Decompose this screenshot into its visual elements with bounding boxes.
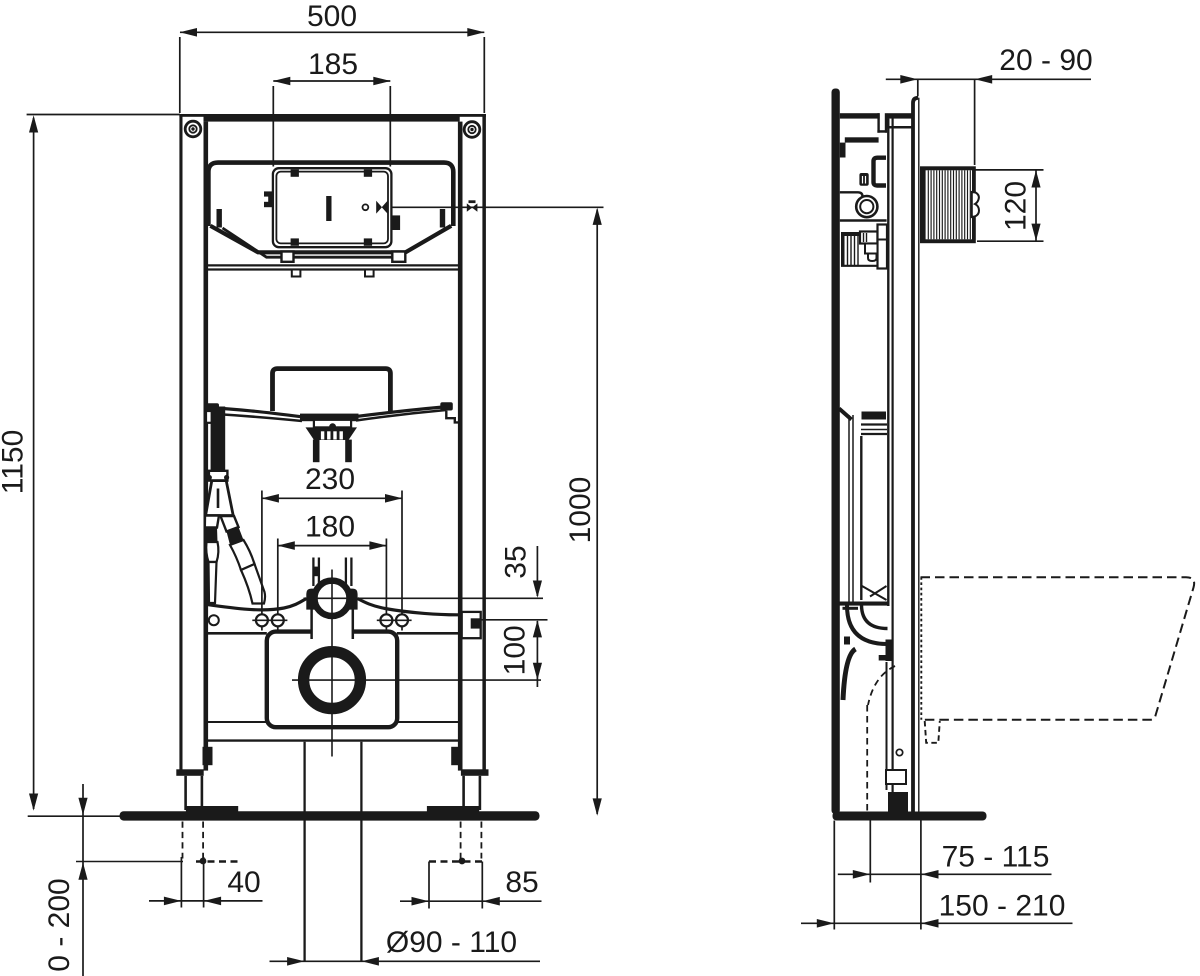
svg-text:20 - 90: 20 - 90 xyxy=(999,44,1092,77)
svg-text:120: 120 xyxy=(1000,181,1033,231)
svg-text:180: 180 xyxy=(305,511,355,544)
svg-text:35: 35 xyxy=(500,545,533,578)
svg-text:Ø90 - 110: Ø90 - 110 xyxy=(386,926,517,959)
svg-text:40: 40 xyxy=(227,866,260,899)
svg-text:75 - 115: 75 - 115 xyxy=(942,841,1050,874)
svg-text:1150: 1150 xyxy=(0,430,30,495)
svg-text:150 - 210: 150 - 210 xyxy=(939,890,1066,923)
svg-text:230: 230 xyxy=(305,463,355,496)
svg-text:85: 85 xyxy=(505,866,538,899)
svg-text:185: 185 xyxy=(308,48,358,81)
svg-text:100: 100 xyxy=(499,625,532,675)
svg-text:0 - 200: 0 - 200 xyxy=(43,878,76,971)
svg-text:500: 500 xyxy=(307,0,357,33)
svg-text:1000: 1000 xyxy=(564,477,597,544)
